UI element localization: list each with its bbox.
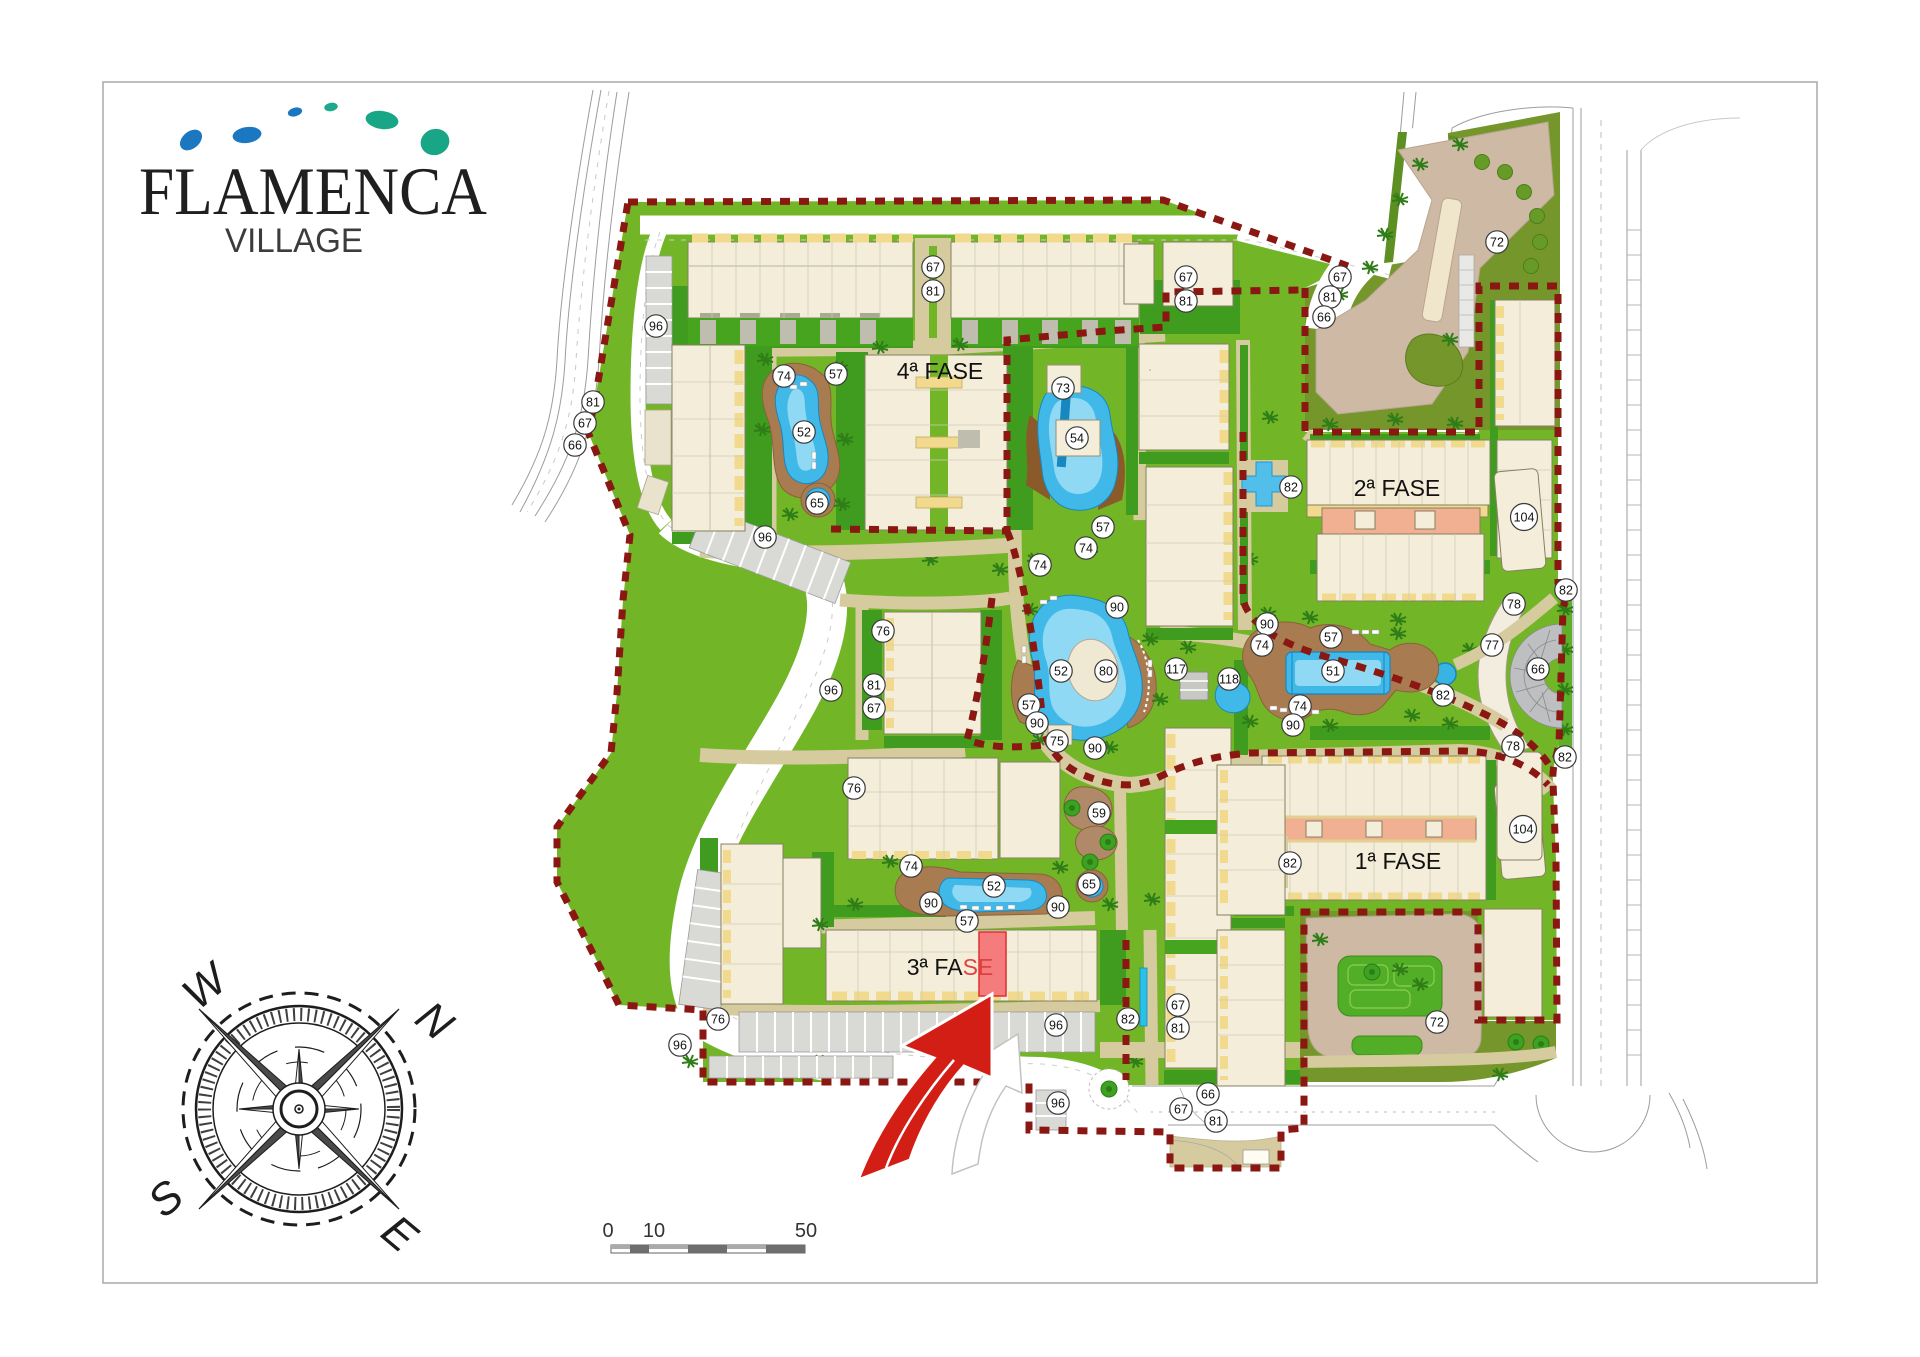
svg-text:82: 82: [1436, 689, 1450, 703]
svg-text:67: 67: [867, 702, 881, 716]
svg-text:90: 90: [1110, 601, 1124, 615]
svg-text:81: 81: [1209, 1115, 1223, 1129]
svg-text:118: 118: [1219, 673, 1239, 687]
svg-text:81: 81: [1179, 295, 1193, 309]
svg-text:78: 78: [1507, 598, 1521, 612]
svg-text:72: 72: [1430, 1016, 1444, 1030]
svg-text:66: 66: [1531, 663, 1545, 677]
svg-text:67: 67: [1333, 271, 1347, 285]
svg-text:65: 65: [810, 497, 824, 511]
svg-text:74: 74: [904, 860, 918, 874]
svg-text:67: 67: [926, 261, 940, 275]
svg-text:FLAMENCA: FLAMENCA: [139, 153, 487, 229]
svg-text:74: 74: [777, 370, 791, 384]
svg-text:57: 57: [1324, 631, 1338, 645]
svg-text:117: 117: [1166, 663, 1186, 677]
svg-text:82: 82: [1558, 751, 1572, 765]
svg-text:65: 65: [1082, 878, 1096, 892]
svg-text:52: 52: [1054, 665, 1068, 679]
svg-text:82: 82: [1283, 857, 1297, 871]
svg-text:75: 75: [1050, 735, 1064, 749]
svg-text:57: 57: [1096, 521, 1110, 535]
svg-text:77: 77: [1485, 639, 1499, 653]
svg-text:90: 90: [1030, 717, 1044, 731]
svg-text:80: 80: [1099, 665, 1113, 679]
svg-text:90: 90: [1260, 618, 1274, 632]
svg-text:74: 74: [1079, 542, 1093, 556]
svg-text:0: 0: [602, 1220, 613, 1242]
svg-text:72: 72: [1490, 236, 1504, 250]
svg-text:1ª FASE: 1ª FASE: [1355, 848, 1442, 874]
svg-text:96: 96: [673, 1039, 687, 1053]
svg-text:74: 74: [1033, 559, 1047, 573]
svg-text:96: 96: [758, 531, 772, 545]
svg-text:66: 66: [1201, 1088, 1215, 1102]
svg-text:57: 57: [960, 915, 974, 929]
svg-text:52: 52: [987, 880, 1001, 894]
svg-text:90: 90: [1088, 742, 1102, 756]
svg-text:81: 81: [1323, 291, 1337, 305]
svg-text:74: 74: [1255, 639, 1269, 653]
svg-text:96: 96: [824, 684, 838, 698]
svg-text:VILLAGE: VILLAGE: [225, 222, 363, 260]
svg-text:90: 90: [924, 897, 938, 911]
svg-text:76: 76: [711, 1013, 725, 1027]
svg-text:81: 81: [586, 396, 600, 410]
svg-text:51: 51: [1326, 665, 1340, 679]
svg-text:76: 76: [847, 782, 861, 796]
svg-text:57: 57: [1022, 699, 1036, 713]
svg-text:96: 96: [1049, 1019, 1063, 1033]
svg-text:2ª FASE: 2ª FASE: [1354, 475, 1441, 501]
svg-text:73: 73: [1056, 382, 1070, 396]
svg-text:90: 90: [1051, 901, 1065, 915]
svg-text:74: 74: [1293, 700, 1307, 714]
svg-text:3ª FASE: 3ª FASE: [907, 954, 994, 980]
svg-text:50: 50: [795, 1220, 817, 1242]
svg-text:78: 78: [1506, 740, 1520, 754]
svg-text:66: 66: [568, 439, 582, 453]
svg-text:96: 96: [1051, 1097, 1065, 1111]
svg-text:54: 54: [1070, 432, 1084, 446]
svg-text:82: 82: [1284, 481, 1298, 495]
svg-text:81: 81: [867, 679, 881, 693]
svg-text:10: 10: [643, 1220, 665, 1242]
svg-text:67: 67: [1179, 271, 1193, 285]
svg-text:67: 67: [1174, 1103, 1188, 1117]
svg-text:90: 90: [1286, 719, 1300, 733]
svg-text:104: 104: [1514, 511, 1535, 525]
svg-text:66: 66: [1317, 311, 1331, 325]
svg-text:67: 67: [578, 417, 592, 431]
svg-text:104: 104: [1513, 823, 1534, 837]
svg-text:4ª FASE: 4ª FASE: [897, 358, 984, 384]
svg-text:57: 57: [829, 368, 843, 382]
svg-text:96: 96: [649, 320, 663, 334]
svg-text:81: 81: [926, 285, 940, 299]
svg-text:82: 82: [1121, 1013, 1135, 1027]
svg-text:52: 52: [797, 426, 811, 440]
svg-text:59: 59: [1092, 807, 1106, 821]
svg-text:67: 67: [1171, 999, 1185, 1013]
svg-text:82: 82: [1559, 584, 1573, 598]
svg-text:76: 76: [876, 625, 890, 639]
svg-text:81: 81: [1171, 1022, 1185, 1036]
